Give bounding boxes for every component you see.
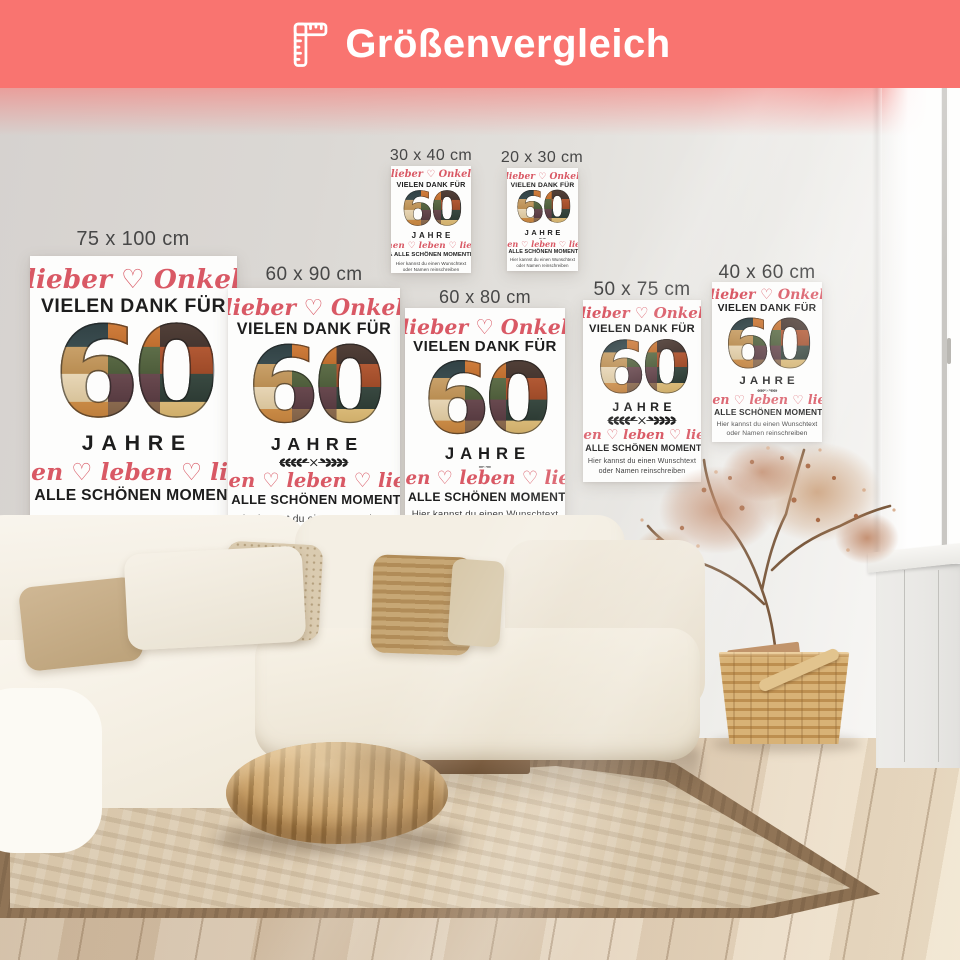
poster-jahre-line: JAHRE — [522, 228, 563, 237]
poster-number-collage: 60 — [596, 336, 687, 400]
poster-moments-line: & ALLE SCHÖNEN MOMENTE — [712, 407, 822, 417]
poster-moments-line: & ALLE SCHÖNEN MOMENTE — [30, 487, 237, 505]
poster-script-top: lieber ♡ Onkel — [507, 172, 578, 181]
size-label-30x40: 30 x 40 cm — [371, 147, 491, 165]
poster-script-bottom: lachen ♡ leben ♡ lieben — [391, 242, 471, 251]
poster-note-line1: Hier kannst du einen Wunschtext — [510, 257, 575, 262]
rattan-pouf — [226, 742, 448, 844]
poster-75x100: lieber ♡ Onkel VIELEN DANK FÜR 60 JAHRE … — [30, 256, 237, 542]
poster-script-top: lieber ♡ Onkel — [228, 297, 400, 319]
poster-note: Hier kannst du einen Wunschtextoder Name… — [396, 261, 466, 273]
poster-moments-line: & ALLE SCHÖNEN MOMENTE — [228, 492, 400, 507]
poster-number-collage: 60 — [54, 318, 214, 429]
ruler-icon — [289, 17, 329, 71]
window-frame — [942, 88, 947, 566]
poster-script-top: lieber ♡ Onkel — [30, 267, 237, 293]
poster-number-collage: 60 — [401, 189, 461, 231]
size-label-20x30: 20 x 30 cm — [482, 149, 602, 167]
poster-jahre-line: JAHRE — [409, 231, 453, 240]
header-banner: Größenvergleich — [0, 0, 960, 88]
poster-number-collage: 60 — [423, 356, 547, 442]
size-label-75x100: 75 x 100 cm — [53, 228, 213, 251]
poster-number-collage: 60 — [515, 189, 570, 227]
poster-moments-line: & ALLE SCHÖNEN MOMENTE — [405, 490, 565, 504]
poster-script-bottom: lachen ♡ leben ♡ lieben — [228, 471, 400, 491]
poster-note-line2: oder Namen reinschreiben — [516, 263, 568, 268]
poster-jahre-line: JAHRE — [735, 375, 798, 387]
header-glow — [0, 88, 960, 136]
poster-jahre-line: JAHRE — [608, 400, 676, 414]
poster-number-collage: 60 — [724, 315, 809, 374]
size-label-60x90: 60 x 90 cm — [234, 264, 394, 286]
poster-note: Hier kannst du einen Wunschtextoder Name… — [510, 257, 575, 269]
window-handle — [947, 338, 951, 364]
poster-20x30: lieber ♡ Onkel VIELEN DANK FÜR 60 JAHRE … — [507, 168, 578, 271]
poster-script-bottom: lachen ♡ leben ♡ lieben — [507, 240, 578, 248]
page-title: Größenvergleich — [345, 22, 670, 67]
poster-moments-line: & ALLE SCHÖNEN MOMENTE — [391, 252, 471, 258]
poster-script-bottom: lachen ♡ leben ♡ lieben — [405, 470, 565, 488]
poster-script-bottom: lachen ♡ leben ♡ lieben — [30, 461, 237, 484]
poster-moments-line: & ALLE SCHÖNEN MOMENTE — [507, 249, 578, 255]
laurel-divider-icon — [257, 457, 371, 468]
sofa-arm-left — [0, 688, 102, 853]
cabinet-seam — [938, 570, 939, 762]
poster-jahre-line: JAHRE — [439, 444, 531, 464]
screenshot-root: 75 x 100 cm lieber ♡ Onkel VIELEN DANK F… — [0, 0, 960, 960]
poster-script-top: lieber ♡ Onkel — [583, 306, 701, 321]
poster-note-line1: Hier kannst du einen Wunschtext — [396, 261, 466, 266]
pillow-small-beige — [447, 558, 505, 647]
poster-30x40: lieber ♡ Onkel VIELEN DANK FÜR 60 JAHRE … — [391, 166, 471, 273]
poster-jahre-line: JAHRE — [264, 434, 363, 455]
poster-script-top: lieber ♡ Onkel — [391, 170, 471, 180]
poster-script-top: lieber ♡ Onkel — [405, 317, 565, 337]
poster-script-bottom: lachen ♡ leben ♡ lieben — [712, 394, 822, 407]
size-label-60x80: 60 x 80 cm — [405, 287, 565, 308]
poster-script-top: lieber ♡ Onkel — [712, 288, 822, 302]
sofa-seat-mid — [255, 628, 700, 760]
size-label-40x60: 40 x 60 cm — [687, 262, 847, 284]
poster-40x60: lieber ♡ Onkel VIELEN DANK FÜR 60 JAHRE … — [712, 282, 822, 442]
poster-jahre-line: JAHRE — [74, 431, 193, 456]
poster-note-line2: oder Namen reinschreiben — [403, 267, 460, 272]
poster-60x90: lieber ♡ Onkel VIELEN DANK FÜR 60 JAHRE … — [228, 288, 400, 546]
poster-number-collage: 60 — [247, 340, 380, 433]
plant-basket — [716, 652, 852, 744]
pillow-white — [124, 545, 307, 650]
poster-60x80: lieber ♡ Onkel VIELEN DANK FÜR 60 JAHRE … — [405, 308, 565, 540]
